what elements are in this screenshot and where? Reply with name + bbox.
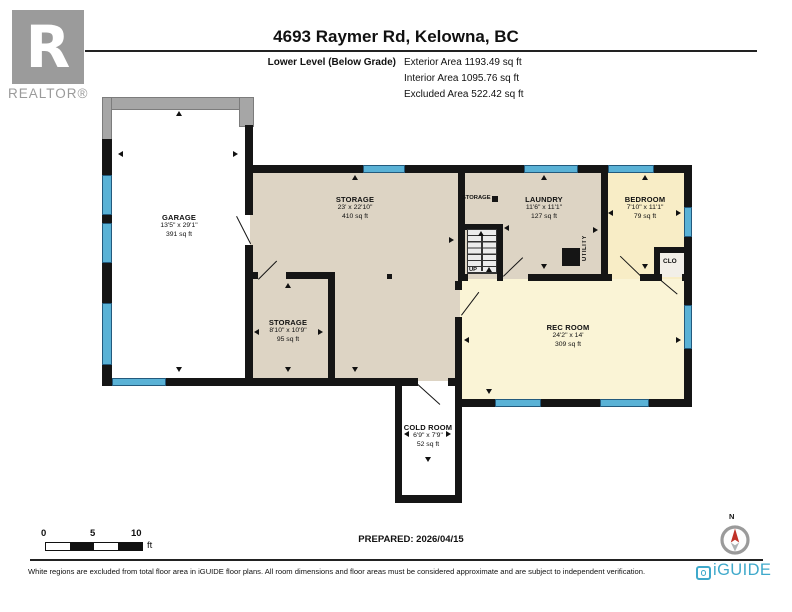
floor-plan-page: R REALTOR® 4693 Raymer Rd, Kelowna, BC L… — [0, 0, 792, 612]
rec-room-dim-arrow-right-icon — [676, 337, 681, 343]
rec-room-window-right — [684, 305, 692, 349]
realtor-logo-caption: REALTOR® — [8, 86, 88, 101]
utility-furnace-icon — [562, 248, 580, 266]
rec-room-window-bottom-1 — [495, 399, 541, 407]
rec-room-wall-bottom — [455, 399, 692, 407]
interior-area: Interior Area 1095.76 sq ft — [404, 73, 519, 84]
scale-tick-0: 0 — [41, 528, 46, 539]
header-divider — [85, 50, 757, 52]
staircase-up-arrow-icon — [478, 231, 484, 236]
garage-window-2 — [102, 223, 112, 263]
garage-label: GARAGE 13'5" x 29'1" 391 sq ft — [134, 213, 224, 239]
rec-room-dim-arrow-left-icon — [464, 337, 469, 343]
iguide-logo: iGUIDE — [696, 561, 786, 583]
storage-label: STORAGE 23' x 22'10" 410 sq ft — [310, 195, 400, 221]
laundry-dim-arrow-right-icon — [593, 227, 598, 233]
scale-segment — [94, 543, 118, 550]
staircase-direction-line — [481, 235, 483, 271]
rec-room-wall-left-upper — [455, 281, 462, 290]
hall-wall-d — [682, 274, 692, 281]
garage-wall-right-lower — [245, 245, 253, 386]
scale-unit: ft — [147, 540, 152, 551]
garage-dim-arrow-left-icon — [118, 151, 123, 157]
garage-gray-wall-right — [239, 97, 254, 127]
small-storage-dim-arrow-down-icon — [285, 367, 291, 372]
scale-bar — [45, 542, 143, 551]
storage-dim-arrow-down-icon — [352, 367, 358, 372]
bedroom-dim-arrow-up-icon — [642, 175, 648, 180]
bedroom-dim-arrow-down-icon — [642, 264, 648, 269]
hall-wall-a — [458, 274, 468, 281]
small-storage-wall-top-a — [245, 272, 258, 279]
corridor-storage-marker-icon — [492, 196, 498, 202]
storage-window-top — [363, 165, 405, 173]
rec-room-dim-arrow-down-icon — [486, 389, 492, 394]
scale-segment — [70, 543, 94, 550]
rec-room-label: REC ROOM 24'2" x 14' 309 sq ft — [523, 323, 613, 349]
garage-gray-wall-left — [102, 97, 112, 141]
garage-window-1 — [102, 175, 112, 215]
laundry-dim-arrow-down-icon — [541, 264, 547, 269]
laundry-dim-arrow-up-icon — [541, 175, 547, 180]
iguide-camera-icon — [696, 566, 711, 580]
storage-post-marker-icon — [387, 274, 392, 279]
closet-label: CLO — [663, 258, 677, 265]
scale-tick-5: 5 — [90, 528, 95, 539]
corridor-storage-label: STORAGE — [462, 195, 491, 201]
bedroom-window-top — [608, 165, 654, 173]
compass-north-label: N — [729, 512, 734, 521]
cold-room-wall-bottom — [395, 495, 462, 503]
garage-window-bottom — [112, 378, 166, 386]
hall-wall-b — [528, 274, 612, 281]
small-storage-dim-arrow-up-icon — [285, 283, 291, 288]
laundry-window-top — [524, 165, 578, 173]
garage-dim-arrow-down-icon — [176, 367, 182, 372]
realtor-logo-r: R — [26, 12, 71, 82]
laundry-bedroom-wall — [601, 165, 608, 281]
prepared-date: PREPARED: 2026/04/15 — [316, 534, 506, 545]
footer-divider — [30, 559, 763, 561]
storage-dim-arrow-up-icon — [352, 175, 358, 180]
garage-dim-arrow-right-icon — [233, 151, 238, 157]
scale-tick-10: 10 — [131, 528, 142, 539]
level-label: Lower Level (Below Grade) — [146, 57, 396, 68]
corridor-wall — [458, 165, 465, 281]
bedroom-label: BEDROOM 7'10" x 11'1" 79 sq ft — [600, 195, 690, 221]
garage-gray-wall-top — [102, 97, 254, 110]
exterior-area: Exterior Area 1193.49 sq ft — [404, 57, 522, 68]
iguide-camera-lens-icon — [701, 570, 707, 576]
realtor-logo-icon: R — [12, 10, 84, 84]
stair-wall-right — [497, 224, 503, 281]
garage-window-3 — [102, 303, 112, 365]
rec-room-window-bottom-2 — [600, 399, 649, 407]
disclaimer-text: White regions are excluded from total fl… — [28, 567, 770, 576]
iguide-brand-text: iGUIDE — [713, 561, 771, 580]
scale-segment — [118, 543, 142, 550]
garage-floor — [108, 107, 250, 381]
page-title: 4693 Raymer Rd, Kelowna, BC — [0, 27, 792, 47]
cold-room-label: COLD ROOM 6'9" x 7'9" 52 sq ft — [383, 423, 473, 449]
compass-icon — [717, 522, 753, 558]
floor-plan: UP UTILITY STORAGE CLO — [100, 95, 692, 507]
stairs-up-label: UP — [469, 267, 477, 273]
closet-wall-top — [654, 247, 692, 253]
scale-segment — [46, 543, 70, 550]
cold-room-dim-arrow-down-icon — [425, 457, 431, 462]
small-storage-label: STORAGE 8'10" x 10'9" 95 sq ft — [243, 318, 333, 344]
laundry-dim-arrow-left-icon — [504, 225, 509, 231]
laundry-label: LAUNDRY 11'6" x 11'1" 127 sq ft — [499, 195, 589, 221]
stairs-up-arrow-small-icon — [486, 267, 492, 272]
garage-dim-arrow-up-icon — [176, 111, 182, 116]
storage-dim-arrow-right-icon — [449, 237, 454, 243]
utility-label: UTILITY — [582, 235, 588, 261]
